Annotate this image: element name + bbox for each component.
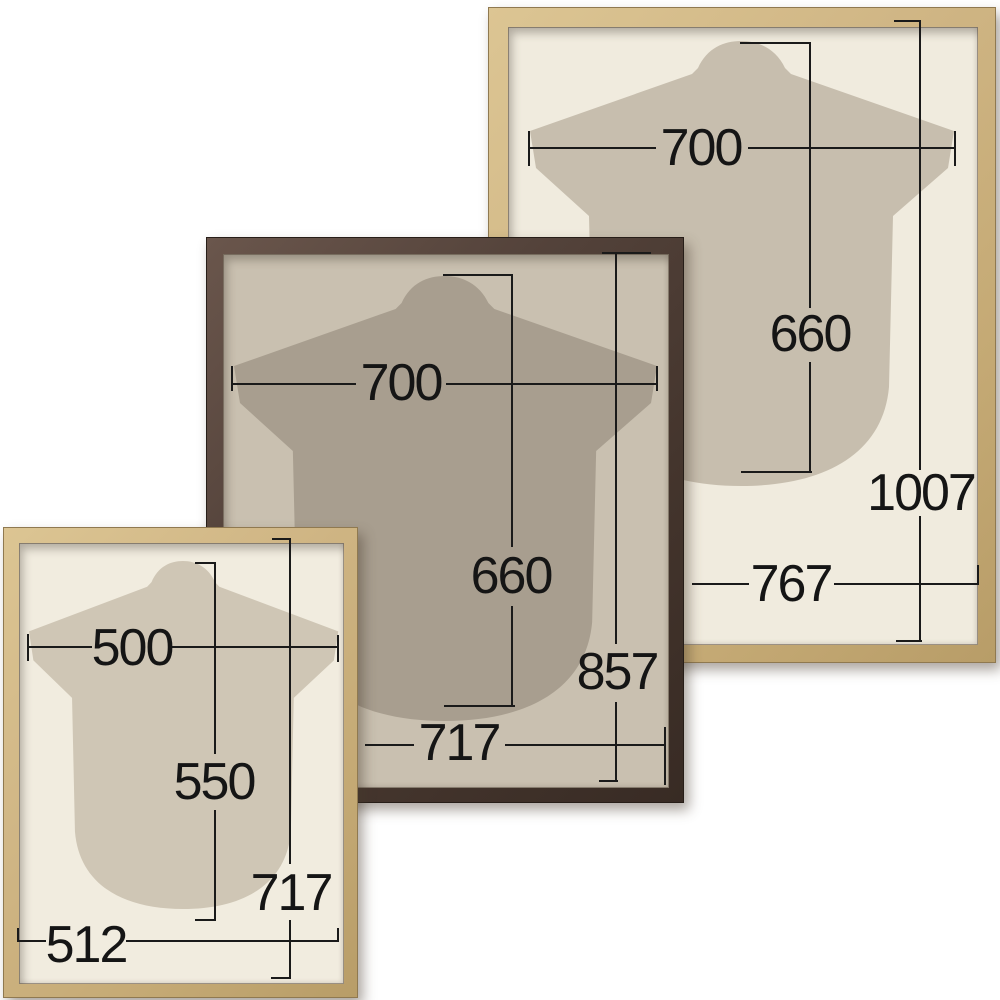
- frame-size-diagram: 700 660 1007 767 700 660: [0, 0, 1000, 1000]
- frame-small: [3, 527, 358, 998]
- frame-small-mat: [19, 543, 344, 984]
- shirt-silhouette-small: [29, 561, 339, 909]
